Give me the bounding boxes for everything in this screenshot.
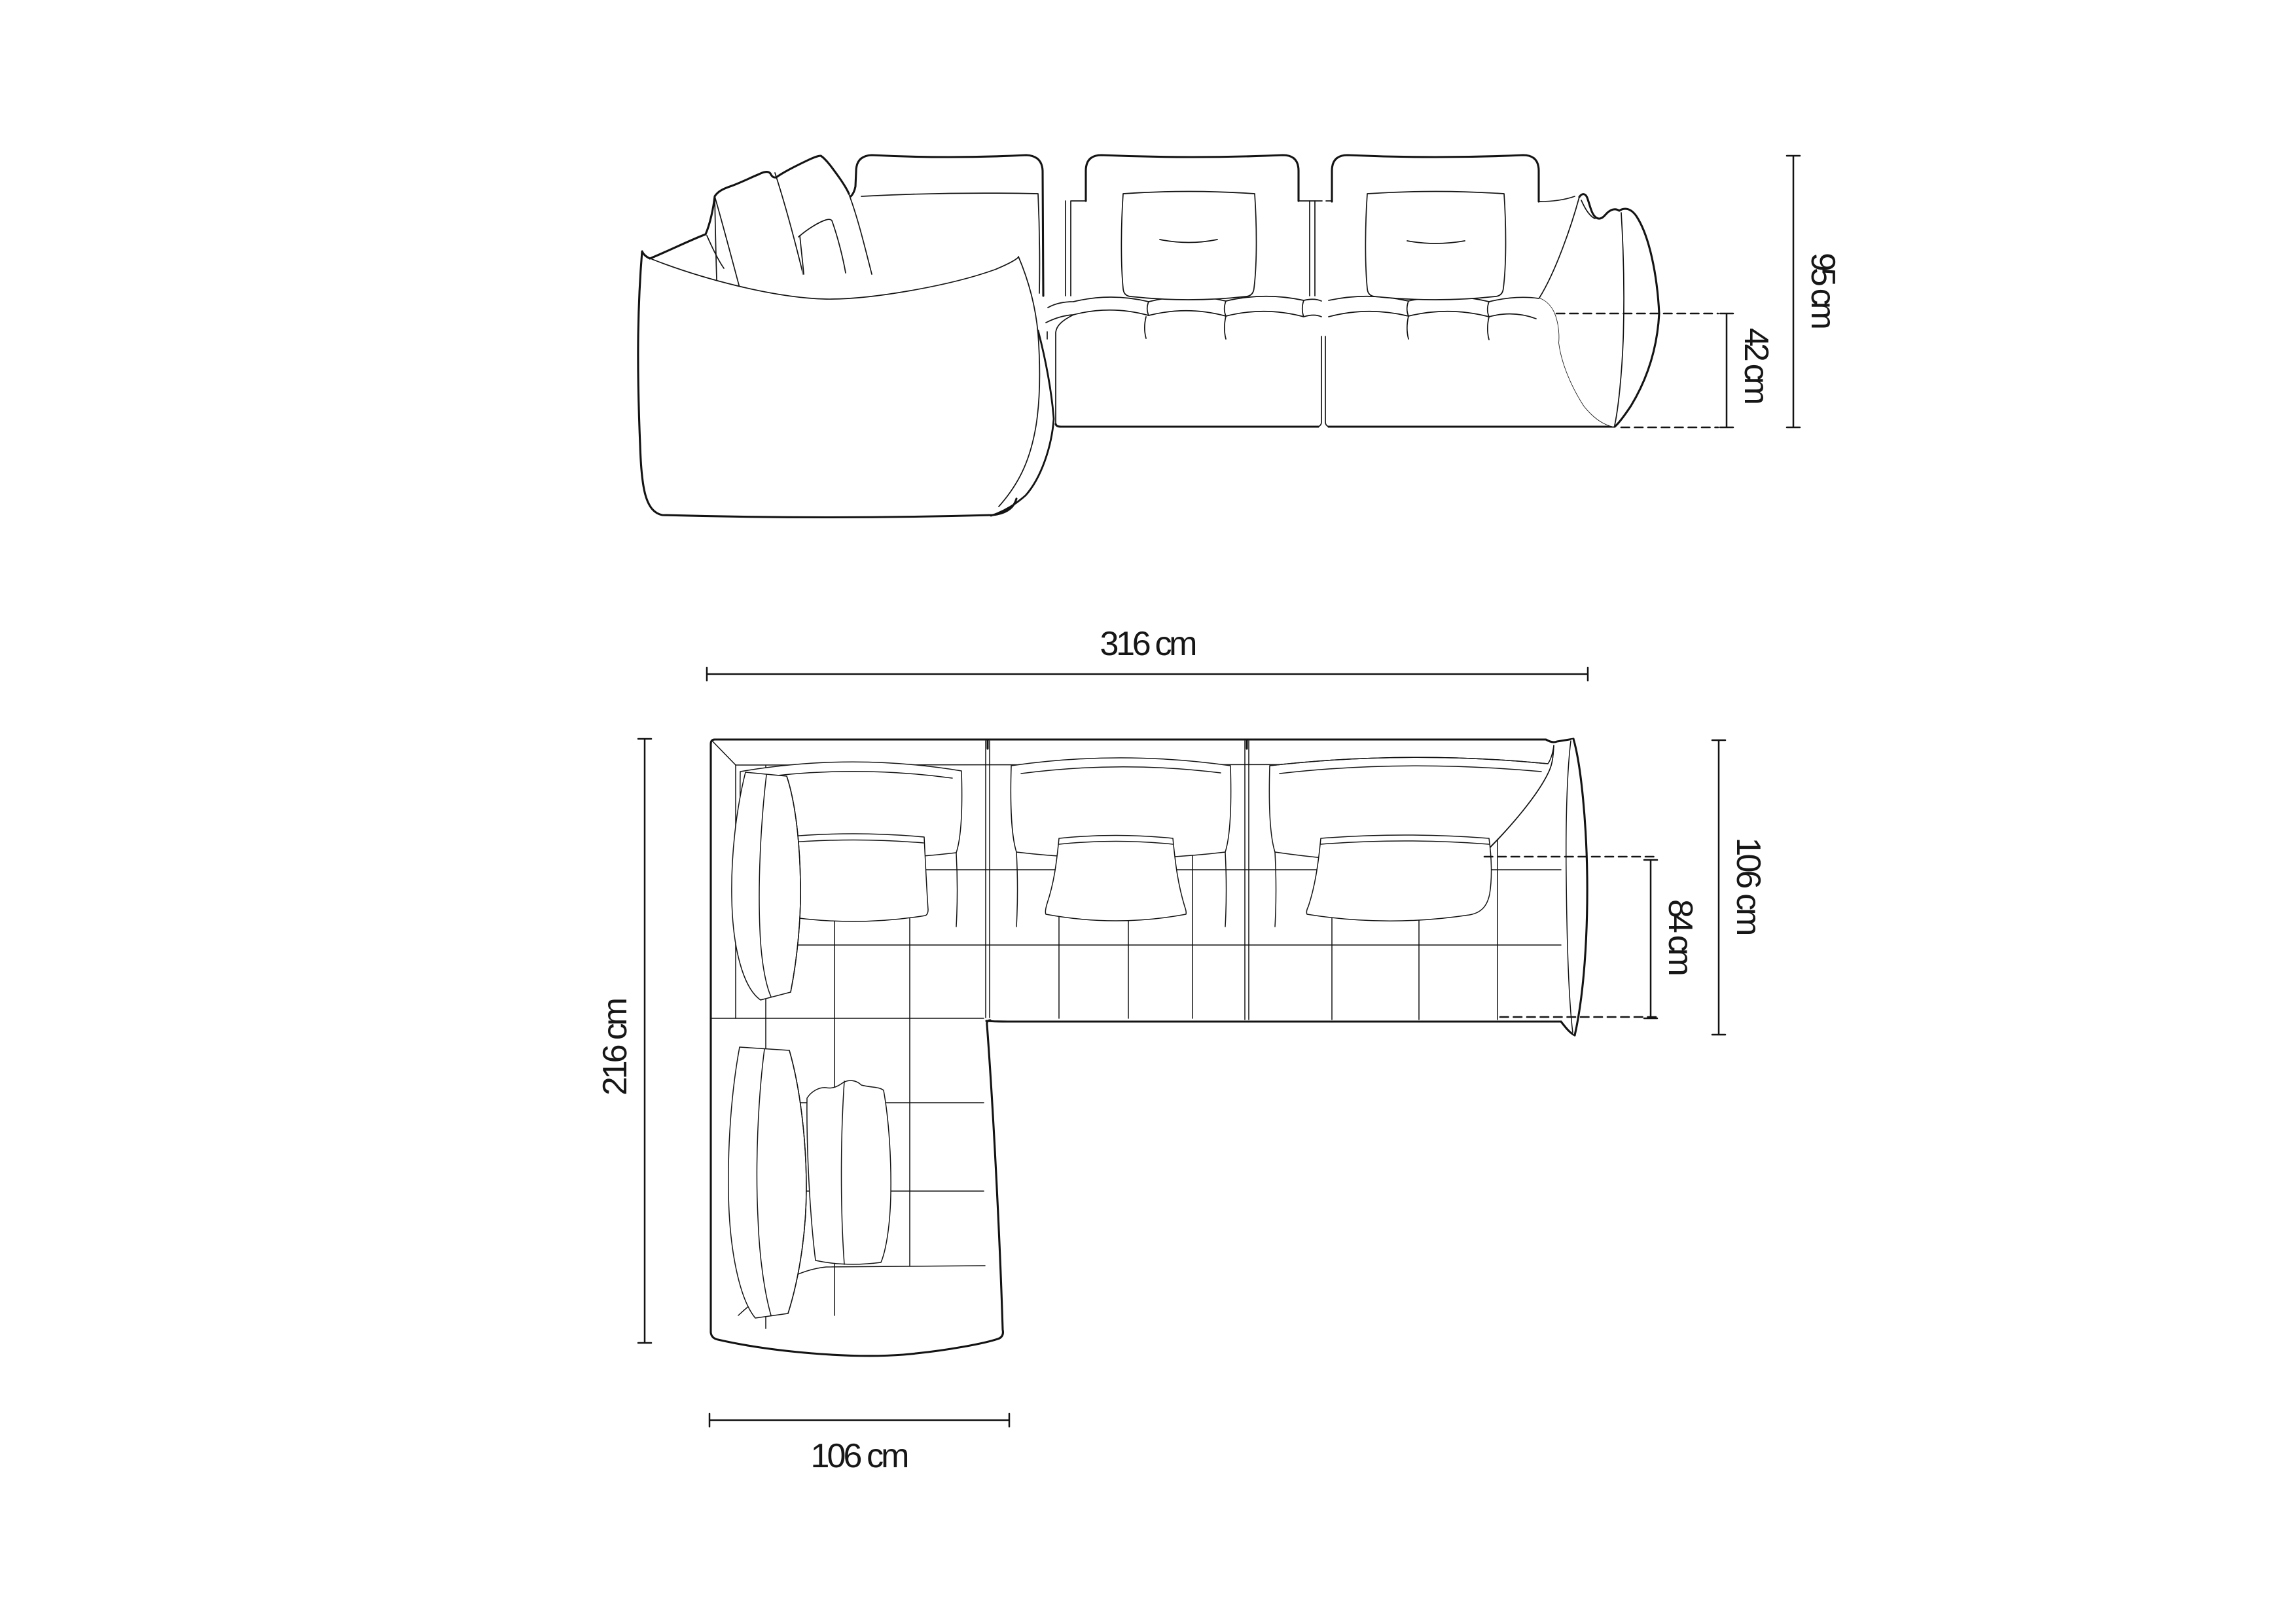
svg-text:84 cm: 84 cm — [1661, 899, 1699, 976]
svg-text:106 cm: 106 cm — [811, 1437, 910, 1475]
svg-text:106 cm: 106 cm — [1729, 838, 1767, 936]
svg-text:42 cm: 42 cm — [1737, 328, 1775, 405]
svg-text:316 cm: 316 cm — [1100, 625, 1198, 663]
svg-text:216 cm: 216 cm — [596, 997, 634, 1096]
svg-text:95 cm: 95 cm — [1804, 253, 1842, 330]
